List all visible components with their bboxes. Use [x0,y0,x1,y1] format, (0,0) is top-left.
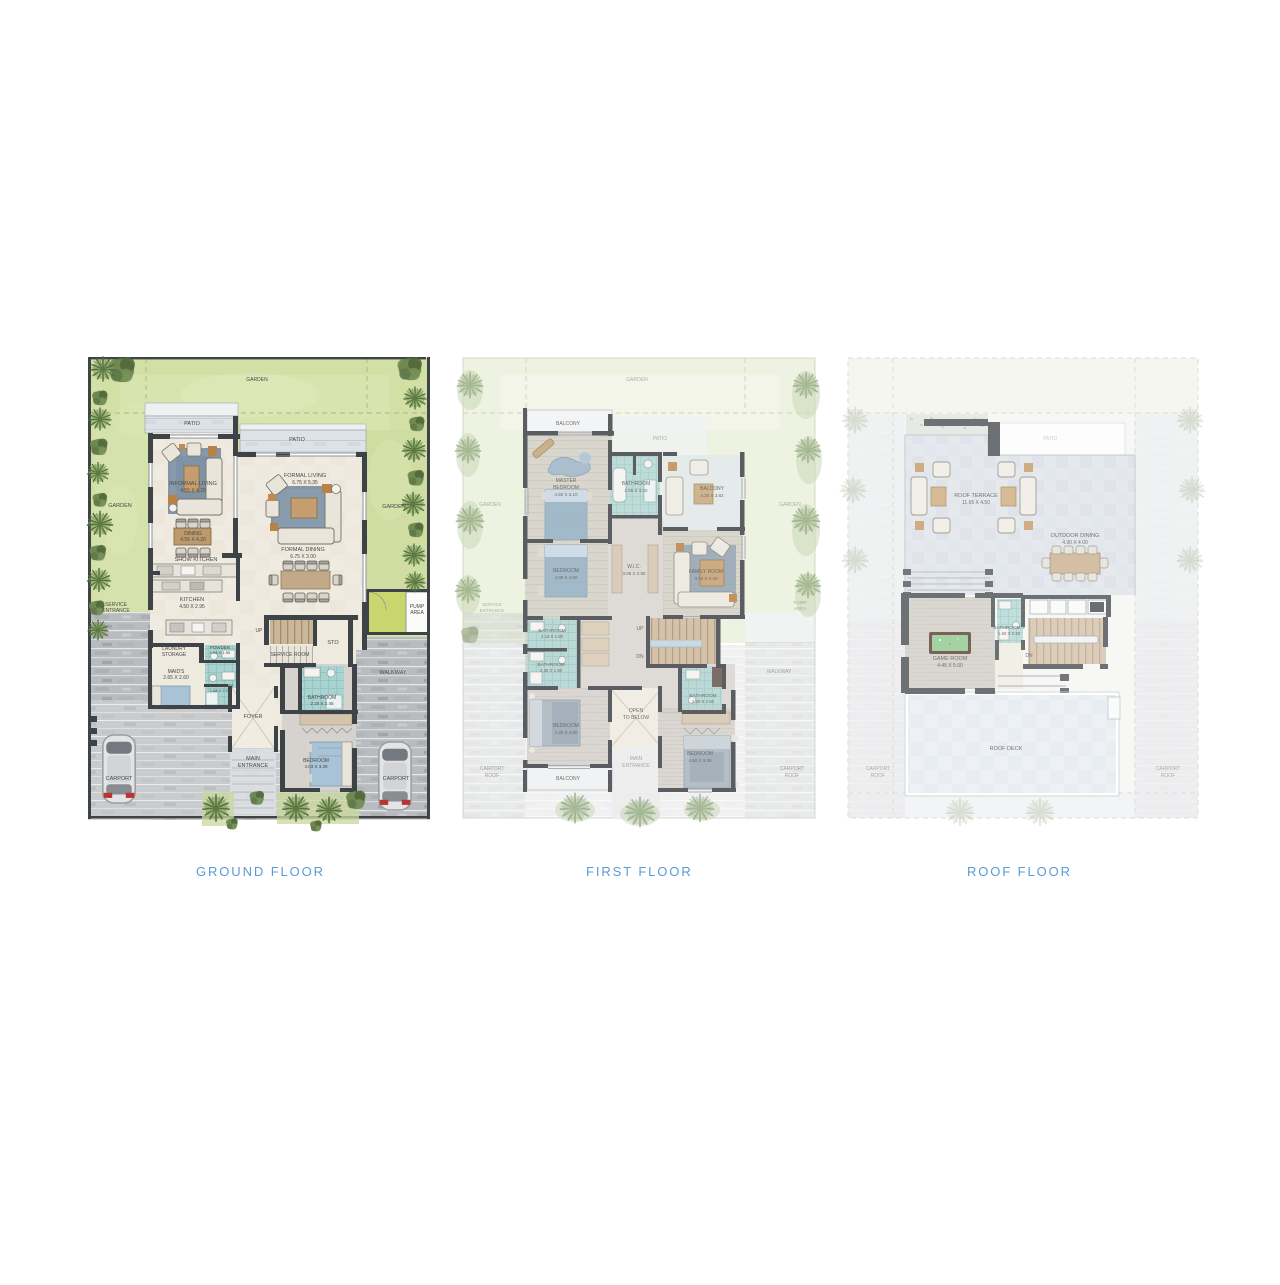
svg-text:ENTRANCE: ENTRANCE [102,608,130,614]
svg-text:ENTRANCE: ENTRANCE [238,763,269,769]
svg-text:UP: UP [256,628,264,634]
svg-text:FOYER: FOYER [244,714,263,720]
svg-text:FORMAL LIVING: FORMAL LIVING [284,473,326,479]
svg-text:CARPORT: CARPORT [106,776,133,782]
svg-text:SHOW KITCHEN: SHOW KITCHEN [175,557,218,563]
svg-text:6.75 X 5.35: 6.75 X 5.35 [292,480,318,486]
svg-text:2.65 X 2.60: 2.65 X 2.60 [163,675,189,681]
svg-text:AREA: AREA [410,610,424,616]
svg-text:PATIO: PATIO [289,437,305,443]
svg-text:2.20 X 2.45: 2.20 X 2.45 [310,701,334,706]
svg-text:MAIN: MAIN [246,756,260,762]
svg-text:STO: STO [327,640,339,646]
svg-text:4.03 X 3.39: 4.03 X 3.39 [304,764,328,769]
svg-text:FORMAL DINING: FORMAL DINING [281,547,325,553]
svg-text:4.50 X 2.95: 4.50 X 2.95 [179,604,205,610]
svg-text:6.75 X 3.00: 6.75 X 3.00 [290,554,316,560]
svg-text:STORAGE: STORAGE [162,652,187,658]
svg-text:GARDEN: GARDEN [108,503,132,509]
svg-text:SERVICE ROOM: SERVICE ROOM [271,652,310,658]
svg-text:4.55 X 4.20: 4.55 X 4.20 [180,537,206,543]
svg-text:GARDEN: GARDEN [382,504,406,510]
svg-text:WALKWAY: WALKWAY [379,670,407,676]
svg-text:KITCHEN: KITCHEN [180,597,204,603]
svg-text:4.55 X 4.20: 4.55 X 4.20 [180,488,206,494]
svg-text:GARDEN: GARDEN [246,377,268,383]
svg-text:CARPORT: CARPORT [383,776,410,782]
svg-text:1.68 X 2.20: 1.68 X 2.20 [210,688,231,693]
svg-text:1.68 X 1.55: 1.68 X 1.55 [210,650,231,655]
svg-text:PATIO: PATIO [184,421,200,427]
svg-text:INFORMAL LIVING: INFORMAL LIVING [169,481,217,487]
